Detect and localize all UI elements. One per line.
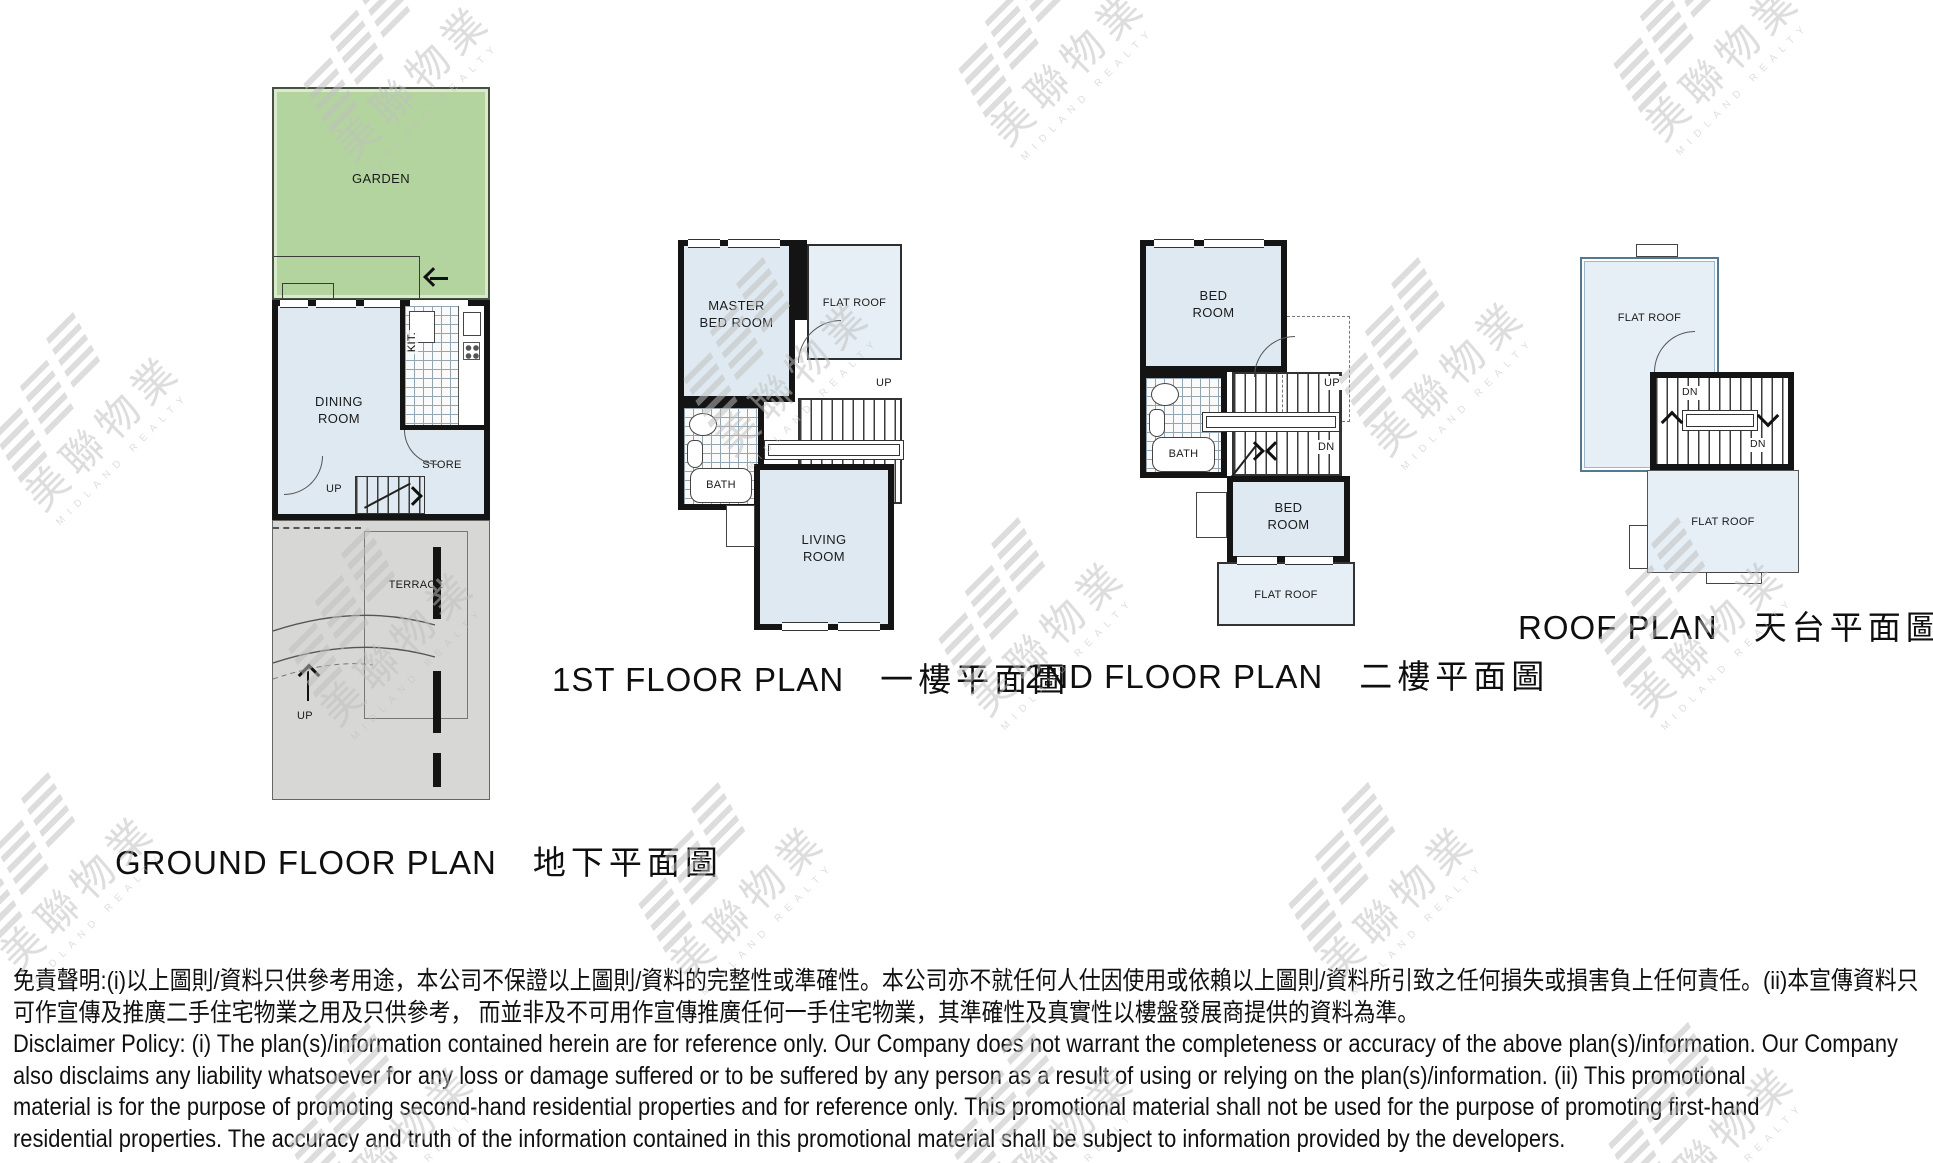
master-bedroom-label: MASTER BED ROOM: [684, 298, 789, 332]
window: [728, 239, 780, 248]
watermark-zh-text: 美聯物業: [0, 793, 178, 978]
roof-flat-roof-lower: FLAT ROOF: [1647, 470, 1799, 573]
roof-title-zh: 天台平面圖: [1754, 601, 1933, 649]
garden-step: [282, 283, 334, 298]
roof-title-en: ROOF PLAN: [1518, 609, 1718, 647]
window: [838, 622, 880, 631]
midland-realty-watermark: 美聯物業MIDLAND REALTY: [0, 269, 215, 530]
window: [280, 299, 308, 308]
roof-dn-upper-label: DN: [1680, 386, 1700, 400]
terrace-wall: [433, 753, 441, 787]
roof-plan: FLAT ROOF DN DN FLAT ROOF: [1580, 257, 1818, 577]
terrace-area: TERRACE UP: [272, 520, 490, 800]
window: [1154, 239, 1194, 248]
terrace-wall: [433, 547, 441, 619]
ground-floor-body: DINING ROOM KIT. STORE UP: [272, 300, 490, 520]
window: [782, 622, 828, 631]
master-bedroom: MASTER BED ROOM: [678, 240, 795, 402]
disclaimer-line: 可作宣傳及推廣二手住宅物業之用及只供參考， 而並非及不可用作宣傳推廣任何一手住宅…: [13, 998, 1933, 1030]
garden-area: GARDEN: [272, 87, 490, 300]
second-bedroom-2-label: BED ROOM: [1233, 500, 1344, 534]
watermark-zh-text: 美聯物業: [1313, 803, 1498, 988]
midland-logo-bars-icon: [0, 260, 163, 483]
living-room: LIVING ROOM: [754, 464, 894, 630]
disclaimer-line: also disclaims any liability whatsoever …: [13, 1061, 1933, 1093]
roof-flat-roof-lower-label: FLAT ROOF: [1648, 515, 1798, 529]
garden-label: GARDEN: [274, 171, 488, 188]
midland-logo-bars-icon: [941, 0, 1128, 118]
bathtub: BATH: [690, 468, 752, 503]
entrance-door-arc: [284, 456, 323, 495]
ground-floor-plan: GARDEN DINING ROOM: [272, 87, 490, 800]
window: [316, 299, 356, 308]
terrace-up-arrow-stem: [307, 671, 309, 701]
first-bath: BATH: [678, 402, 764, 510]
living-room-label: LIVING ROOM: [760, 532, 888, 566]
terrace-up-label: UP: [297, 709, 313, 723]
midland-logo-bars-icon: [1271, 730, 1458, 953]
window: [688, 239, 720, 248]
kitchen-counter: [458, 306, 484, 425]
watermark-en-text: MIDLAND REALTY: [1397, 312, 1560, 475]
watermark-en-text: MIDLAND REALTY: [1672, 0, 1835, 160]
bath-basin: [1151, 383, 1179, 406]
second-floor-title: 2ND FLOOR PLAN 二樓平面圖: [1025, 650, 1549, 698]
roof-dn-lower-label: DN: [1748, 438, 1768, 452]
stair-rail: [764, 440, 904, 460]
stairs-up-label: UP: [326, 482, 342, 496]
stair-rail: [1202, 412, 1340, 432]
flat-roof-door-arc: [798, 320, 841, 363]
stair-down-arrow: [1757, 405, 1780, 428]
window: [1237, 556, 1277, 565]
watermark-zh-text: 美聯物業: [18, 333, 203, 518]
stairs-up: [355, 476, 425, 514]
watermark-en-text: MIDLAND REALTY: [52, 367, 215, 530]
kitchen-label: KIT.: [406, 330, 418, 354]
second-bath-label: BATH: [1169, 447, 1199, 461]
ground-floor-title: GROUND FLOOR PLAN 地下平面圖: [115, 836, 723, 884]
second-floor-plan: BED ROOM BATH UP DN BED ROOM: [1140, 240, 1355, 626]
bath-toilet: [687, 440, 703, 468]
second-up-label: UP: [1322, 376, 1342, 390]
stair-up-arrow: [1661, 411, 1684, 434]
roof-hatch: [1636, 244, 1678, 257]
first-bath-label: BATH: [706, 478, 736, 492]
second-dn-label: DN: [1316, 440, 1337, 454]
roof-stair-enclosure: DN DN: [1650, 372, 1794, 470]
midland-realty-watermark: 美聯物業MIDLAND REALTY: [920, 0, 1181, 165]
kitchen-hob: [463, 342, 480, 360]
midland-realty-watermark: 美聯物業MIDLAND REALTY: [1575, 0, 1836, 160]
living-room-bay-window: [726, 505, 755, 547]
stair-rail: [1682, 410, 1758, 431]
second-floor-title-en: 2ND FLOOR PLAN: [1025, 658, 1323, 696]
terrace-wall: [433, 671, 441, 733]
bath-basin: [689, 413, 717, 436]
first-floor-plan: MASTER BED ROOM FLAT ROOF BATH UP DN: [678, 240, 902, 630]
first-up-label: UP: [874, 376, 894, 390]
second-flat-roof-label: FLAT ROOF: [1219, 588, 1353, 602]
terrace-dashed-boundary: [273, 527, 361, 529]
watermark-zh-text: 美聯物業: [1363, 278, 1548, 463]
terrace-curved-steps: [273, 579, 443, 699]
watermark-zh-text: 美聯物業: [983, 0, 1168, 153]
bedroom-bay-window: [1196, 492, 1227, 538]
window: [1285, 556, 1333, 565]
ground-floor-title-zh: 地下平面圖: [533, 836, 723, 884]
store-label: STORE: [400, 458, 484, 472]
roof-flat-roof-upper-label: FLAT ROOF: [1582, 311, 1717, 325]
roof-title: ROOF PLAN 天台平面圖: [1518, 601, 1933, 649]
dining-room-label: DINING ROOM: [278, 394, 400, 428]
first-floor-title-en: 1ST FLOOR PLAN: [552, 661, 844, 699]
disclaimer-line: 免責聲明:(i)以上圖則/資料只供參考用途，本公司不保證以上圖則/資料的完整性或…: [13, 966, 1933, 998]
second-bedroom-1-label: BED ROOM: [1146, 288, 1281, 322]
disclaimer-line: Disclaimer Policy: (i) The plan(s)/infor…: [13, 1029, 1933, 1061]
watermark-zh-text: 美聯物業: [663, 803, 848, 988]
bath-toilet: [1149, 409, 1165, 437]
disclaimer-line: material is for the purpose of promoting…: [13, 1092, 1933, 1124]
watermark-zh-text: 美聯物業: [1638, 0, 1823, 148]
second-bedroom-2: BED ROOM: [1227, 476, 1350, 562]
disclaimer-line: residential properties. The accuracy and…: [13, 1124, 1933, 1156]
first-floor-title: 1ST FLOOR PLAN 一樓平面圖: [552, 653, 1070, 701]
window: [364, 299, 400, 308]
watermark-en-text: MIDLAND REALTY: [1017, 2, 1180, 165]
midland-logo-bars-icon: [0, 720, 138, 943]
kitchen-oven: [463, 312, 481, 336]
midland-realty-watermark: 美聯物業MIDLAND REALTY: [1250, 739, 1511, 1000]
roof-ledge: [1706, 572, 1762, 584]
ground-floor-title-en: GROUND FLOOR PLAN: [115, 844, 497, 882]
second-flat-roof: FLAT ROOF: [1217, 562, 1355, 626]
roof-ledge: [1629, 525, 1648, 569]
second-floor-title-zh: 二樓平面圖: [1359, 650, 1549, 698]
first-flat-roof-label: FLAT ROOF: [809, 296, 900, 310]
midland-logo-bars-icon: [1596, 0, 1783, 113]
window: [1204, 239, 1264, 248]
floor-plan-sheet: GARDEN DINING ROOM: [0, 0, 1933, 1163]
bathtub: BATH: [1152, 437, 1215, 472]
wall: [790, 240, 807, 320]
watermark-en-text: MIDLAND REALTY: [1657, 572, 1820, 735]
kitchen: KIT.: [400, 306, 484, 430]
disclaimer-text: 免責聲明:(i)以上圖則/資料只供參考用途，本公司不保證以上圖則/資料的完整性或…: [13, 966, 1933, 1155]
